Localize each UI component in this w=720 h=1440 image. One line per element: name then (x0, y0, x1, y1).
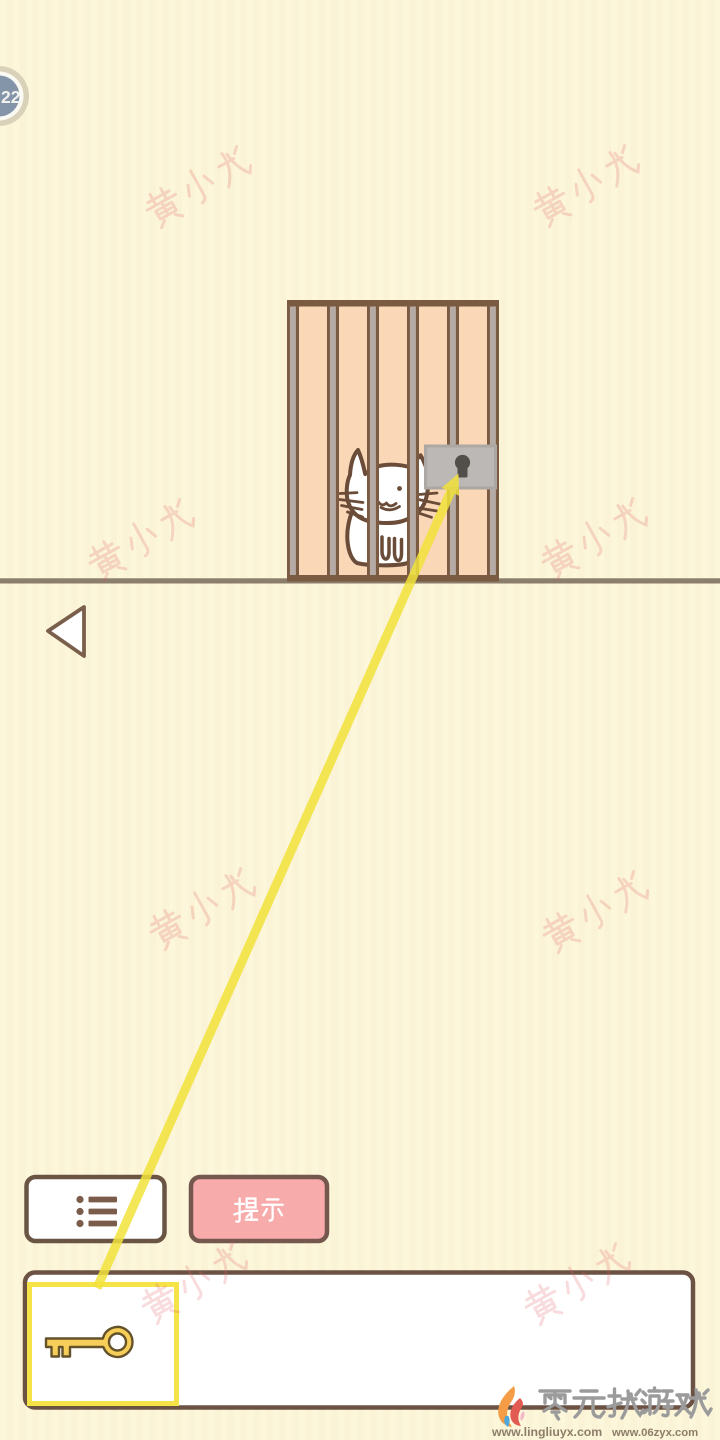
svg-text:www.06zyx.com: www.06zyx.com (611, 1427, 698, 1439)
svg-text:22: 22 (1, 87, 21, 107)
svg-text:www.lingliuyx.com: www.lingliuyx.com (491, 1425, 602, 1439)
